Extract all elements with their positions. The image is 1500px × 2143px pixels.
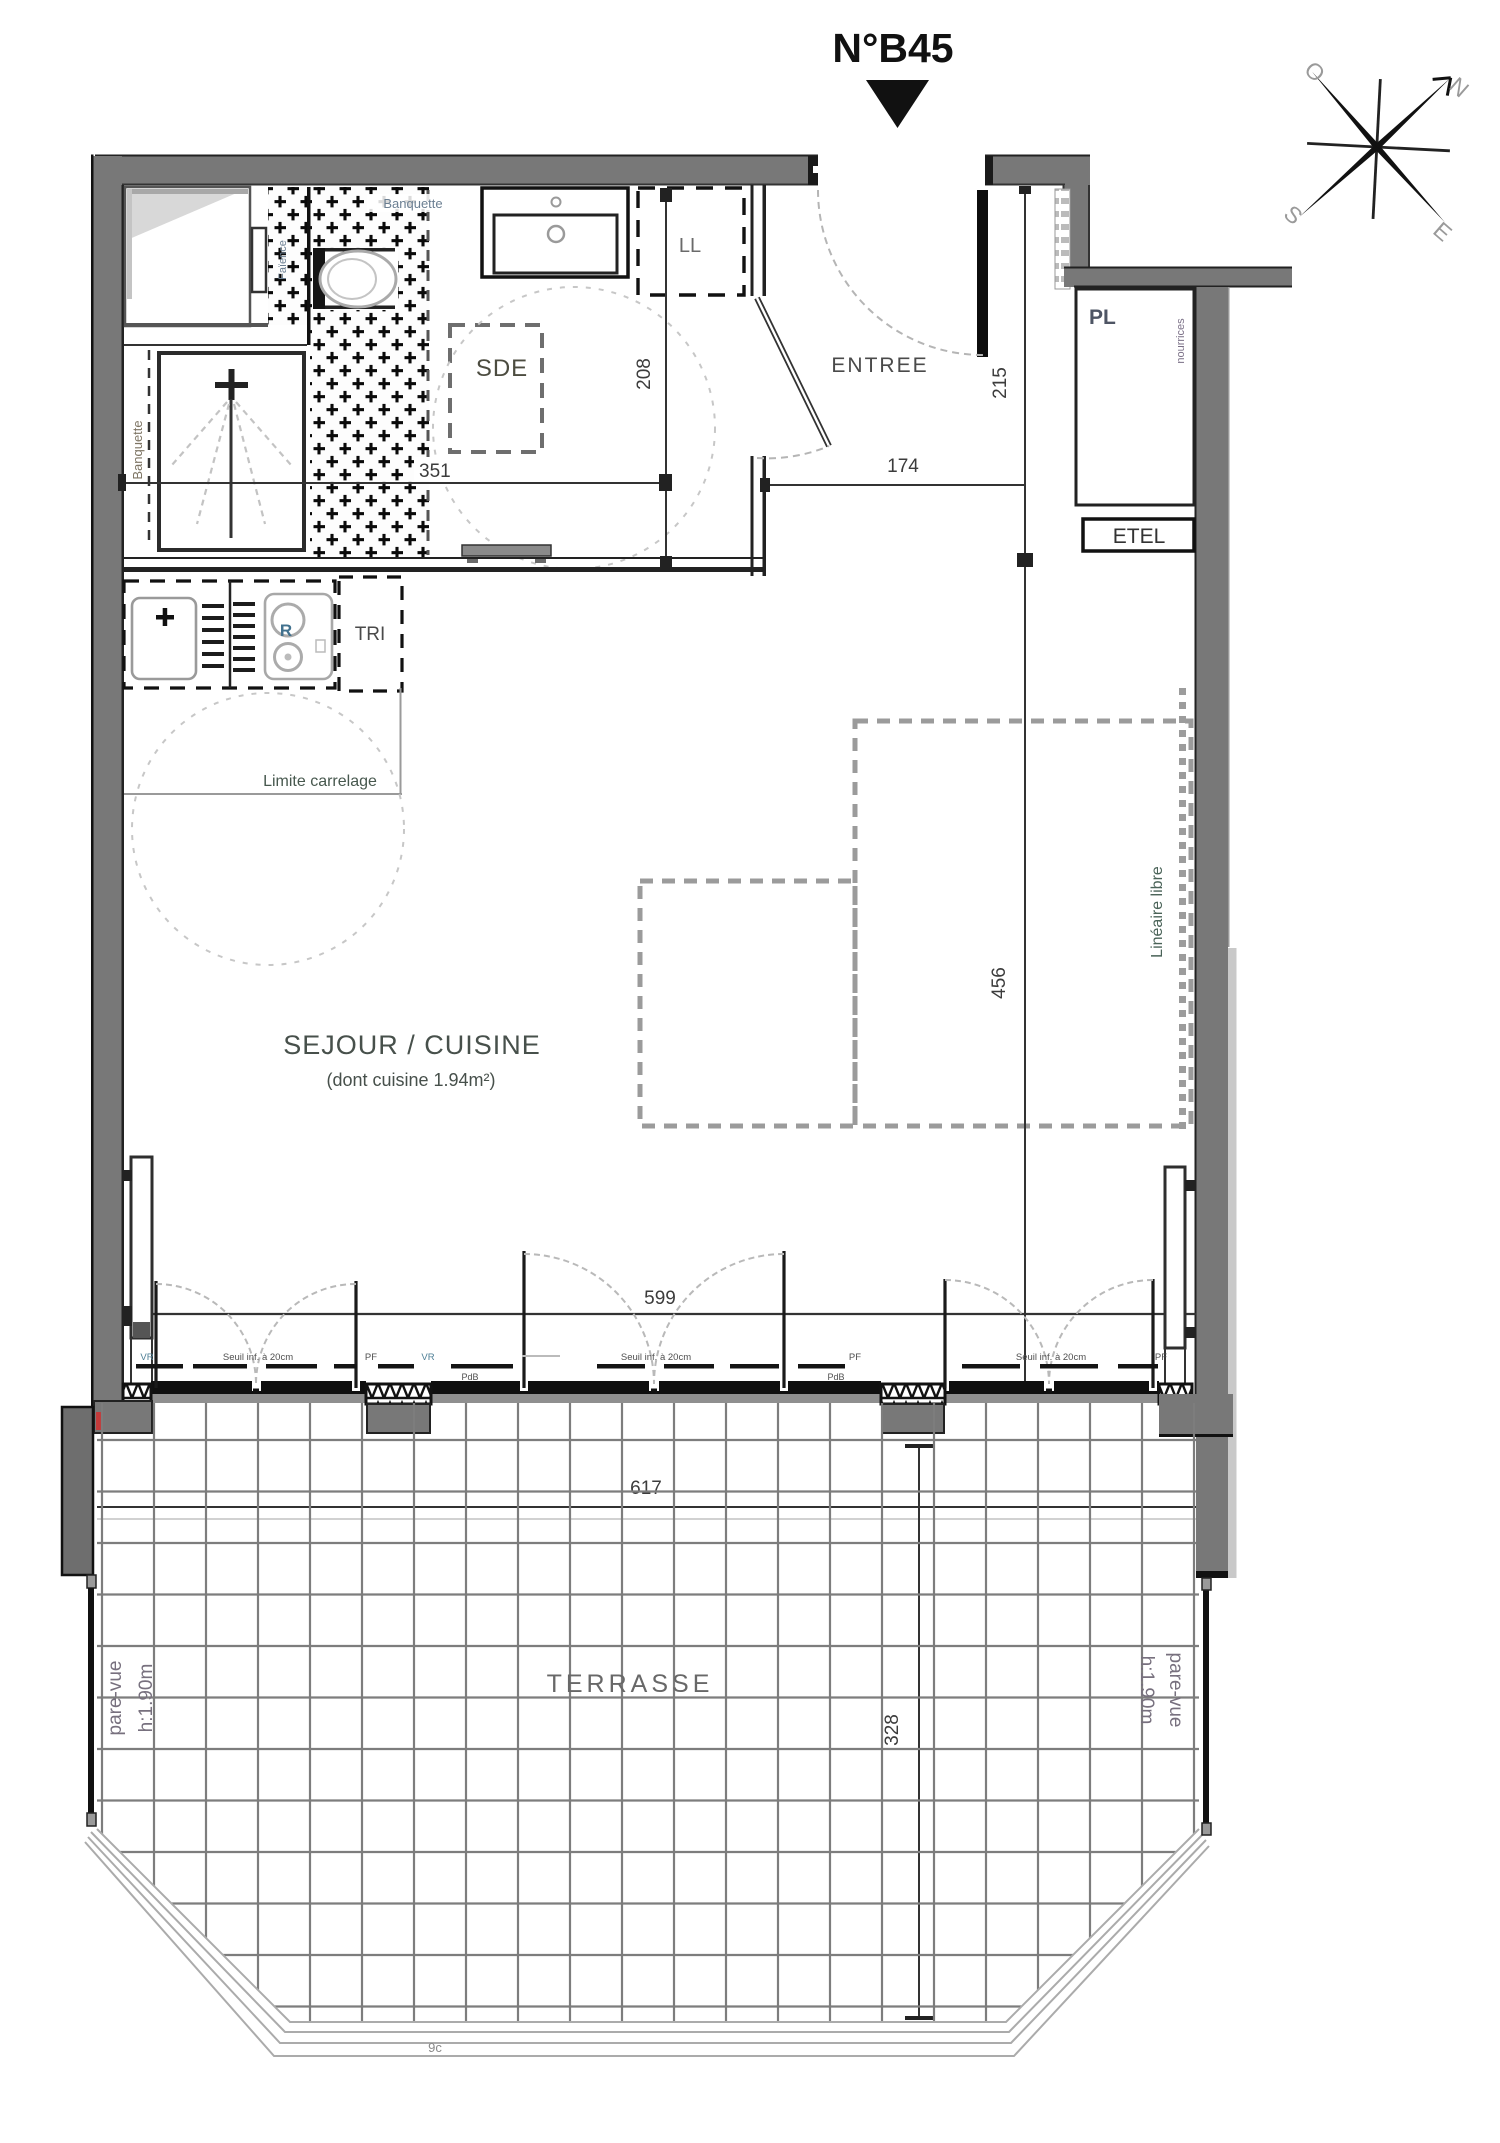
svg-text:ETEL: ETEL [1113,525,1166,548]
svg-text:PF: PF [849,1352,861,1363]
svg-text:599: 599 [644,1288,676,1309]
svg-text:R: R [280,621,292,640]
svg-text:Seuil inf. à 20cm: Seuil inf. à 20cm [621,1352,691,1363]
svg-text:pare-vue: pare-vue [105,1661,126,1736]
svg-text:Seuil inf. à 20cm: Seuil inf. à 20cm [1016,1352,1086,1363]
svg-text:TERRASSE: TERRASSE [547,1670,714,1698]
svg-text:N°B45: N°B45 [832,25,953,71]
svg-text:Limite carrelage: Limite carrelage [263,773,377,790]
svg-text:456: 456 [989,967,1010,999]
svg-text:Banquette: Banquette [383,196,442,211]
svg-text:617: 617 [630,1478,662,1499]
svg-text:Seuil inf. à 20cm: Seuil inf. à 20cm [223,1352,293,1363]
svg-text:Linéaire libre: Linéaire libre [1149,866,1166,958]
svg-text:LL: LL [679,235,701,257]
svg-text:PF: PF [365,1352,377,1363]
svg-text:PdB: PdB [827,1372,844,1382]
svg-text:(dont cuisine 1.94m²): (dont cuisine 1.94m²) [326,1070,495,1090]
svg-text:h:1.90m: h:1.90m [1136,1656,1157,1725]
svg-text:pare-vue: pare-vue [1165,1653,1186,1728]
svg-text:9c: 9c [428,2040,442,2055]
svg-text:Banquette: Banquette [130,420,145,479]
svg-text:Faïence: Faïence [277,240,289,280]
svg-text:TRI: TRI [355,624,386,645]
svg-text:PL: PL [1089,306,1116,329]
svg-text:ENTREE: ENTREE [831,354,928,377]
svg-text:208: 208 [634,358,655,390]
svg-text:nourrices: nourrices [1175,318,1187,364]
svg-text:h:1.90m: h:1.90m [136,1664,157,1733]
svg-text:VR: VR [421,1352,434,1363]
svg-text:PF: PF [1155,1352,1167,1363]
svg-text:328: 328 [882,1714,903,1746]
svg-text:PdB: PdB [461,1372,478,1382]
svg-text:SDE: SDE [476,355,528,382]
svg-text:174: 174 [887,456,919,477]
svg-text:SEJOUR / CUISINE: SEJOUR / CUISINE [283,1030,541,1060]
svg-text:215: 215 [990,367,1011,399]
svg-text:351: 351 [419,461,451,482]
svg-text:VR: VR [140,1352,153,1363]
